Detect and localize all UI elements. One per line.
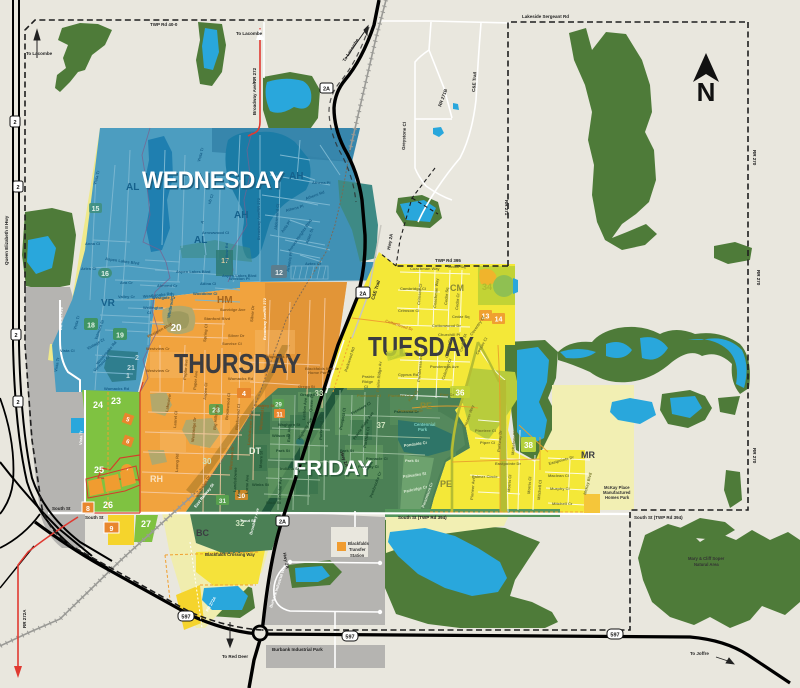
- svg-text:Palmer Circle: Palmer Circle: [472, 474, 498, 479]
- svg-text:Cottonwood Dr: Cottonwood Dr: [432, 323, 461, 328]
- svg-text:PE: PE: [440, 479, 452, 489]
- svg-text:12: 12: [275, 270, 283, 277]
- svg-text:Parkwood Rd: Parkwood Rd: [318, 414, 324, 440]
- svg-text:37: 37: [377, 421, 386, 430]
- svg-text:AH: AH: [289, 171, 303, 182]
- svg-text:24: 24: [93, 400, 103, 410]
- svg-text:Schular Ave: Schular Ave: [277, 476, 283, 500]
- svg-text:Greystone Cl: Greystone Cl: [401, 122, 407, 150]
- svg-text:25: 25: [94, 465, 104, 475]
- svg-text:Duncan Ave: Duncan Ave: [58, 306, 64, 330]
- svg-text:2: 2: [14, 333, 17, 339]
- svg-text:Churchill Pl: Churchill Pl: [438, 332, 460, 337]
- svg-text:Piper Cl: Piper Cl: [480, 440, 495, 445]
- svg-text:TWP Rd 40-0: TWP Rd 40-0: [150, 22, 178, 27]
- svg-text:15: 15: [92, 206, 100, 213]
- svg-text:Anna Cl: Anna Cl: [85, 241, 100, 246]
- svg-text:Station: Station: [350, 553, 365, 558]
- svg-text:Park St: Park St: [405, 458, 419, 463]
- svg-text:MR: MR: [581, 450, 595, 460]
- svg-text:Pinnacle Cl: Pinnacle Cl: [366, 456, 388, 461]
- svg-text:34: 34: [482, 282, 492, 292]
- svg-text:Ava Cr: Ava Cr: [120, 280, 133, 285]
- svg-text:Mitchell Cr: Mitchell Cr: [552, 501, 573, 506]
- svg-text:Home Park: Home Park: [308, 370, 330, 375]
- svg-text:Crimson Cl: Crimson Cl: [398, 308, 419, 313]
- svg-text:23: 23: [111, 396, 121, 406]
- svg-text:Winks St: Winks St: [252, 482, 270, 487]
- svg-text:Lakeside Sergeant Rd: Lakeside Sergeant Rd: [522, 14, 569, 19]
- svg-text:To Joffre: To Joffre: [690, 651, 709, 656]
- svg-text:Landsdowne: Landsdowne: [232, 467, 238, 492]
- svg-text:Eastpointe Dr: Eastpointe Dr: [495, 461, 521, 466]
- svg-text:HM: HM: [217, 295, 233, 306]
- svg-text:8: 8: [86, 506, 90, 513]
- svg-text:BC: BC: [196, 528, 209, 538]
- svg-text:Adina Cl: Adina Cl: [200, 281, 216, 286]
- svg-text:N: N: [697, 77, 716, 107]
- svg-text:11: 11: [276, 413, 283, 419]
- svg-text:Portway Cl: Portway Cl: [358, 464, 379, 469]
- svg-text:Murphy Cl: Murphy Cl: [550, 486, 570, 491]
- svg-text:38: 38: [524, 441, 533, 450]
- svg-text:Natural Area: Natural Area: [694, 562, 719, 567]
- svg-text:Westview Cr: Westview Cr: [146, 346, 170, 351]
- svg-text:RR 270: RR 270: [752, 448, 757, 464]
- svg-text:Broadway Ave/RR 272: Broadway Ave/RR 272: [256, 197, 261, 240]
- svg-text:RR 272A: RR 272A: [22, 609, 27, 628]
- svg-text:Vista Tr: Vista Tr: [78, 430, 84, 445]
- svg-text:597: 597: [345, 635, 354, 641]
- svg-text:30: 30: [203, 457, 212, 466]
- svg-text:16: 16: [101, 271, 109, 278]
- svg-text:4: 4: [242, 391, 246, 398]
- svg-text:AH: AH: [234, 210, 248, 221]
- svg-text:Aspen Lakes Blvd: Aspen Lakes Blvd: [176, 269, 211, 274]
- svg-text:Arlen Cl: Arlen Cl: [81, 266, 96, 271]
- svg-text:Park St: Park St: [276, 448, 290, 453]
- svg-text:Cl: Cl: [147, 310, 151, 315]
- svg-text:East Ave: East Ave: [286, 424, 292, 442]
- svg-text:36: 36: [456, 389, 465, 398]
- svg-text:Cl: Cl: [364, 384, 368, 389]
- svg-text:Lorne Ave: Lorne Ave: [244, 474, 250, 494]
- svg-text:To Red Deer: To Red Deer: [222, 654, 248, 659]
- svg-text:South St (TWP Rd 394): South St (TWP Rd 394): [398, 515, 447, 520]
- svg-text:597: 597: [610, 633, 619, 639]
- svg-text:Willow Rd: Willow Rd: [224, 242, 229, 262]
- svg-text:Winston Pl: Winston Pl: [229, 276, 250, 281]
- svg-text:Queen Elizabeth II Hwy: Queen Elizabeth II Hwy: [4, 215, 9, 265]
- svg-text:Park: Park: [418, 427, 428, 432]
- svg-text:27: 27: [141, 519, 151, 529]
- svg-text:Pinewood Cl: Pinewood Cl: [357, 393, 381, 398]
- svg-text:Mary & Cliff Soper: Mary & Cliff Soper: [688, 556, 725, 561]
- svg-text:Vista Cl: Vista Cl: [60, 348, 75, 353]
- svg-text:WEDNESDAY: WEDNESDAY: [142, 167, 284, 194]
- svg-text:South St: South St: [85, 515, 104, 520]
- svg-text:Panorama Dr: Panorama Dr: [398, 408, 423, 413]
- svg-text:Westview Cr: Westview Cr: [146, 368, 170, 373]
- svg-text:Homes Park: Homes Park: [605, 495, 630, 500]
- svg-text:2A: 2A: [323, 87, 330, 93]
- svg-text:To Lacombe: To Lacombe: [236, 31, 263, 36]
- svg-text:Pinetree Cl: Pinetree Cl: [475, 428, 496, 433]
- svg-text:Blackfalds Crossing Way: Blackfalds Crossing Way: [205, 552, 256, 557]
- svg-text:South St (TWP Rd 394): South St (TWP Rd 394): [634, 515, 683, 520]
- svg-text:Maclean Cl: Maclean Cl: [548, 473, 569, 478]
- svg-text:Transfer: Transfer: [349, 547, 366, 552]
- svg-text:Ave: Ave: [236, 489, 241, 497]
- svg-text:TWP Rd 395: TWP Rd 395: [435, 258, 461, 263]
- svg-text:Indiana St: Indiana St: [280, 466, 300, 471]
- svg-text:Valley Cr: Valley Cr: [118, 294, 135, 299]
- svg-text:Silver Dr: Silver Dr: [228, 333, 245, 338]
- svg-text:RR 270: RR 270: [756, 270, 761, 286]
- svg-text:Plumtree Cr: Plumtree Cr: [388, 393, 411, 398]
- svg-text:14: 14: [495, 317, 503, 324]
- svg-text:Gregg St: Gregg St: [300, 392, 318, 397]
- svg-text:2: 2: [135, 355, 139, 362]
- svg-text:VR: VR: [101, 298, 116, 309]
- svg-text:AL: AL: [194, 235, 207, 246]
- svg-text:2A: 2A: [279, 520, 286, 526]
- svg-text:20: 20: [170, 323, 182, 334]
- svg-text:Sunrise Cl: Sunrise Cl: [222, 341, 242, 346]
- svg-text:Arrowwood Cl: Arrowwood Cl: [202, 230, 229, 235]
- svg-text:597: 597: [181, 615, 190, 621]
- svg-text:Blackfalds: Blackfalds: [348, 541, 370, 546]
- svg-text:Gregg St: Gregg St: [298, 384, 316, 389]
- svg-text:1: 1: [126, 373, 130, 380]
- svg-text:26: 26: [103, 500, 113, 510]
- svg-text:Broadway Ave/RR 272: Broadway Ave/RR 272: [262, 297, 267, 340]
- svg-text:Woodbine Cl: Woodbine Cl: [193, 291, 217, 296]
- svg-text:2: 2: [16, 400, 19, 406]
- svg-text:CM: CM: [450, 283, 464, 293]
- svg-text:Athena Pl: Athena Pl: [312, 180, 330, 185]
- svg-text:To Lacombe: To Lacombe: [26, 51, 53, 56]
- svg-text:18: 18: [87, 323, 95, 330]
- svg-text:Park St: Park St: [340, 448, 354, 453]
- svg-text:Aztec Cr: Aztec Cr: [305, 261, 322, 266]
- svg-text:Burbank Industrial Park: Burbank Industrial Park: [272, 647, 323, 652]
- svg-text:Coachman Way: Coachman Way: [410, 266, 440, 271]
- svg-text:19: 19: [116, 333, 124, 340]
- svg-text:Broadway Ave/RR 272: Broadway Ave/RR 272: [252, 67, 257, 115]
- svg-text:South St: South St: [52, 506, 71, 511]
- svg-text:Womacks Rd: Womacks Rd: [104, 386, 130, 391]
- svg-text:Sunridge Ave: Sunridge Ave: [220, 307, 246, 312]
- svg-text:Cedar Sq: Cedar Sq: [452, 314, 470, 319]
- svg-text:RH: RH: [150, 474, 163, 484]
- svg-text:Leung Rd: Leung Rd: [174, 453, 180, 472]
- svg-text:Moore St: Moore St: [258, 450, 264, 468]
- svg-text:Cedar Sq: Cedar Sq: [448, 264, 466, 269]
- svg-text:29: 29: [275, 403, 282, 409]
- svg-text:Pine Cr: Pine Cr: [440, 392, 454, 397]
- svg-text:2: 2: [13, 120, 16, 126]
- svg-text:Womacks Rd: Womacks Rd: [266, 354, 292, 359]
- svg-text:RR 270: RR 270: [752, 150, 757, 166]
- svg-text:31: 31: [219, 498, 227, 505]
- svg-text:RR 271: RR 271: [504, 200, 509, 216]
- svg-text:21: 21: [127, 365, 135, 372]
- svg-text:AL: AL: [126, 182, 139, 193]
- svg-text:Almond Cr: Almond Cr: [157, 283, 178, 288]
- svg-text:Womacks Rd: Womacks Rd: [228, 376, 254, 381]
- svg-text:Stanford Blvd: Stanford Blvd: [204, 316, 231, 321]
- svg-text:2: 2: [16, 185, 19, 191]
- svg-text:9: 9: [110, 526, 114, 533]
- svg-text:2A: 2A: [359, 292, 366, 298]
